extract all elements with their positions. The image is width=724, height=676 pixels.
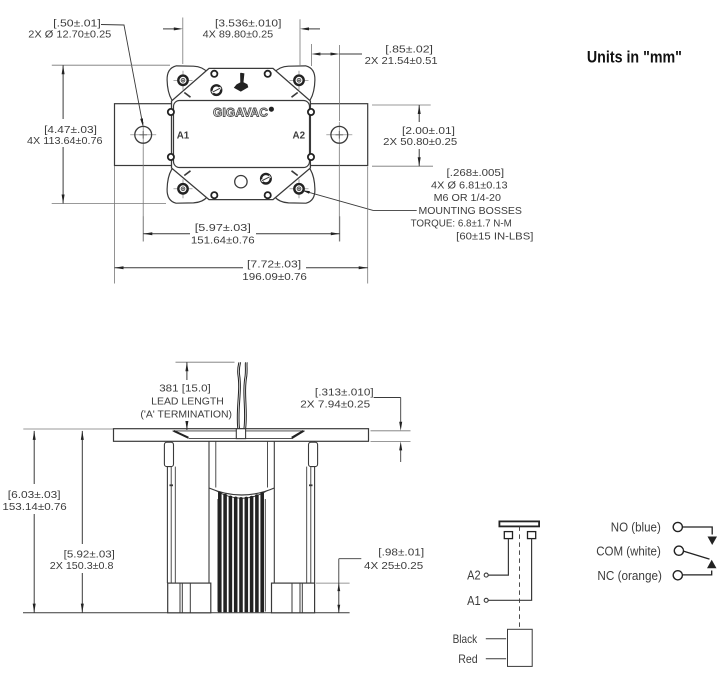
svg-text:[5.92±.03]: [5.92±.03] [64, 549, 115, 561]
svg-text:TORQUE: 6.8±1.7 N-M: TORQUE: 6.8±1.7 N-M [411, 217, 512, 229]
svg-text:2X 50.80±0.25: 2X 50.80±0.25 [383, 136, 457, 148]
svg-text:Black: Black [453, 632, 478, 646]
svg-text:A1: A1 [177, 131, 190, 142]
svg-text:A1: A1 [467, 594, 481, 608]
svg-text:NO (blue): NO (blue) [611, 521, 661, 535]
svg-text:4X 113.64±0.76: 4X 113.64±0.76 [27, 135, 103, 147]
svg-text:M6 OR 1/4-20: M6 OR 1/4-20 [434, 192, 502, 204]
svg-text:COM (white): COM (white) [596, 544, 661, 558]
svg-text:Red: Red [458, 652, 478, 666]
svg-text:A2: A2 [293, 131, 306, 142]
svg-text:4X 89.80±0.25: 4X 89.80±0.25 [203, 28, 274, 40]
svg-text:[.98±.01]: [.98±.01] [378, 547, 424, 559]
svg-text:2X 21.54±0.51: 2X 21.54±0.51 [365, 55, 438, 67]
svg-text:151.64±0.76: 151.64±0.76 [191, 235, 255, 247]
svg-text:[.85±.02]: [.85±.02] [385, 44, 433, 56]
svg-text:Units in "mm": Units in "mm" [587, 47, 682, 66]
svg-text:NC (orange): NC (orange) [597, 569, 662, 583]
svg-text:[2.00±.01]: [2.00±.01] [402, 125, 455, 137]
svg-text:MOUNTING BOSSES: MOUNTING BOSSES [419, 205, 522, 217]
svg-text:2X 150.3±0.8: 2X 150.3±0.8 [50, 560, 114, 572]
svg-text:[.313±.010]: [.313±.010] [315, 386, 374, 398]
svg-text:4X 25±0.25: 4X 25±0.25 [364, 560, 423, 572]
svg-text:('A' TERMINATION): ('A' TERMINATION) [140, 409, 232, 421]
svg-text:196.09±0.76: 196.09±0.76 [242, 271, 307, 283]
svg-text:4X Ø 6.81±0.13: 4X Ø 6.81±0.13 [431, 180, 508, 192]
svg-text:381 [15.0]: 381 [15.0] [159, 383, 211, 395]
svg-text:A2: A2 [467, 569, 481, 583]
svg-text:GIGAVAC: GIGAVAC [213, 105, 268, 119]
svg-text:[60±15 IN-LBS]: [60±15 IN-LBS] [456, 231, 533, 243]
svg-text:[7.72±.03]: [7.72±.03] [247, 259, 301, 271]
svg-text:[4.47±.03]: [4.47±.03] [44, 124, 97, 136]
svg-text:LEAD LENGTH: LEAD LENGTH [151, 396, 224, 408]
svg-text:[5.97±.03]: [5.97±.03] [195, 222, 251, 234]
svg-text:2X 7.94±0.25: 2X 7.94±0.25 [300, 399, 370, 411]
svg-text:[6.03±.03]: [6.03±.03] [8, 489, 61, 501]
svg-text:[.268±.005]: [.268±.005] [447, 167, 505, 179]
svg-text:153.14±0.76: 153.14±0.76 [2, 501, 66, 513]
svg-text:2X Ø 12.70±0.25: 2X Ø 12.70±0.25 [28, 28, 111, 40]
